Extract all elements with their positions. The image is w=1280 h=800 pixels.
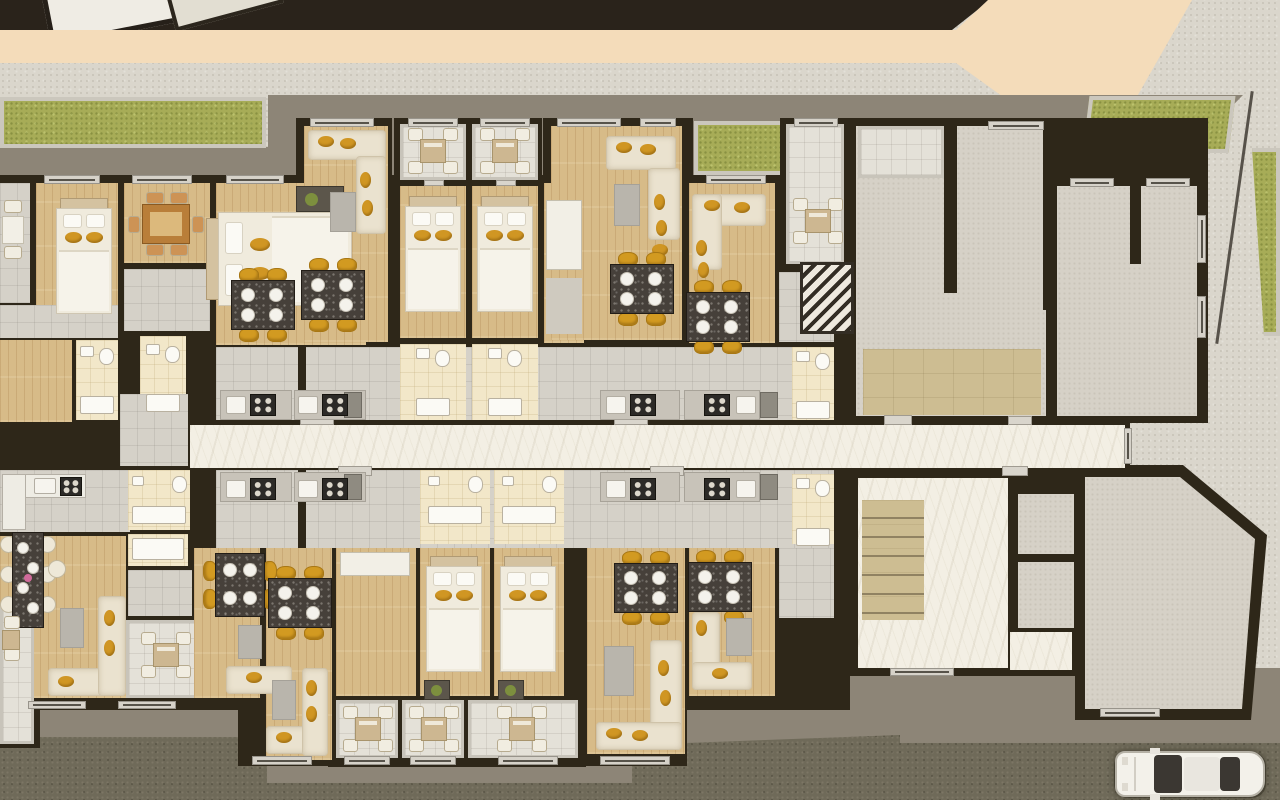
sofa-cushion bbox=[340, 138, 356, 149]
bathtub bbox=[796, 528, 830, 546]
cooktop bbox=[630, 478, 656, 500]
sofa-cushion bbox=[58, 676, 74, 687]
plate bbox=[278, 586, 292, 600]
bath-fixtures bbox=[128, 472, 190, 528]
chair bbox=[267, 328, 287, 342]
dining-table bbox=[215, 553, 265, 617]
wall-stub-3 bbox=[1130, 180, 1141, 264]
car-headlight bbox=[1122, 757, 1128, 765]
staircase bbox=[800, 262, 854, 334]
chair bbox=[618, 312, 638, 326]
sofa-cushion bbox=[306, 706, 317, 722]
plate bbox=[27, 562, 39, 574]
sofa-cushion bbox=[104, 610, 115, 626]
sink bbox=[146, 344, 160, 355]
chair bbox=[276, 626, 296, 640]
toilet bbox=[165, 346, 180, 363]
rug bbox=[614, 184, 640, 226]
window bbox=[794, 118, 838, 127]
storage-room-2 bbox=[1018, 562, 1074, 628]
bathtub bbox=[502, 506, 556, 524]
table-runner bbox=[425, 721, 443, 725]
car-rear-window bbox=[1220, 757, 1240, 791]
balcony-set bbox=[407, 128, 459, 174]
door bbox=[1008, 416, 1032, 425]
car-mirror bbox=[1150, 748, 1160, 754]
sink bbox=[80, 346, 94, 357]
plate bbox=[698, 570, 712, 584]
hall-s5 bbox=[779, 548, 834, 618]
balcony-set bbox=[496, 706, 548, 752]
rug bbox=[238, 625, 262, 659]
duvet bbox=[503, 608, 553, 669]
plate bbox=[17, 542, 29, 554]
plate bbox=[339, 298, 353, 312]
plate bbox=[223, 563, 237, 577]
bath-fixtures bbox=[484, 344, 526, 420]
sofa-cushion bbox=[712, 668, 728, 679]
rug bbox=[272, 680, 296, 720]
cooktop bbox=[322, 478, 348, 500]
plate bbox=[696, 320, 710, 334]
dining-set bbox=[684, 280, 752, 354]
accent-pillow bbox=[486, 230, 503, 241]
bath-fixtures bbox=[792, 474, 834, 544]
table-runner bbox=[496, 143, 514, 147]
fridge bbox=[760, 474, 778, 500]
sofa-cushion bbox=[360, 172, 371, 188]
dining-set bbox=[299, 258, 367, 332]
sofa-cushion bbox=[656, 220, 667, 236]
plate bbox=[726, 570, 740, 584]
window bbox=[310, 118, 374, 127]
accent-pillow bbox=[65, 232, 82, 243]
sidewalk bbox=[0, 30, 956, 63]
sink bbox=[488, 348, 502, 359]
toilet bbox=[542, 476, 557, 493]
cooktop bbox=[704, 394, 730, 416]
window bbox=[498, 756, 558, 765]
plate bbox=[223, 591, 237, 605]
sofa-cushion bbox=[640, 144, 656, 155]
window bbox=[640, 118, 676, 127]
accent-pillow bbox=[250, 238, 270, 251]
bathtub bbox=[428, 506, 482, 524]
kitchen-counter-bl bbox=[2, 474, 26, 530]
accent-pillow bbox=[509, 590, 526, 601]
sofa-cushion bbox=[246, 672, 262, 683]
car-roof bbox=[1184, 757, 1220, 791]
pillow bbox=[86, 214, 105, 228]
sofa-cushion bbox=[734, 202, 750, 213]
plate bbox=[726, 590, 740, 604]
balcony-table bbox=[2, 630, 20, 650]
table-runner bbox=[513, 721, 531, 725]
table-top bbox=[150, 212, 182, 236]
plate bbox=[269, 288, 283, 302]
plate bbox=[339, 278, 353, 292]
sofa bbox=[356, 156, 386, 234]
window bbox=[344, 756, 390, 765]
window bbox=[480, 118, 530, 127]
kitchen-sink bbox=[298, 480, 318, 498]
plate bbox=[724, 320, 738, 334]
pillow bbox=[507, 572, 526, 586]
room-left-3 bbox=[0, 340, 72, 422]
door bbox=[884, 415, 912, 425]
duvet bbox=[429, 608, 479, 669]
chair bbox=[128, 216, 140, 233]
sofa-cushion bbox=[616, 142, 632, 153]
desk bbox=[424, 680, 450, 700]
sofa-cushion bbox=[276, 732, 292, 743]
chair bbox=[170, 244, 188, 256]
garage-room-2 bbox=[1057, 186, 1197, 416]
balcony-set bbox=[342, 706, 394, 752]
chair bbox=[192, 216, 204, 233]
door bbox=[424, 180, 444, 186]
plant bbox=[305, 193, 318, 206]
car-mirror bbox=[1150, 794, 1160, 800]
wall-stub-2 bbox=[1043, 118, 1057, 310]
rug bbox=[604, 646, 634, 696]
window bbox=[410, 756, 456, 765]
chair bbox=[694, 340, 714, 354]
balcony-set bbox=[479, 128, 531, 174]
plate bbox=[269, 308, 283, 322]
storage-room-1 bbox=[1018, 494, 1074, 554]
double-bed bbox=[500, 556, 556, 672]
chair bbox=[337, 318, 357, 332]
balcony-set bbox=[792, 198, 844, 244]
chair bbox=[722, 340, 742, 354]
chair bbox=[646, 312, 666, 326]
sofa-cushion bbox=[362, 200, 373, 216]
bathtub bbox=[132, 506, 186, 524]
duvet bbox=[408, 248, 458, 309]
table-runner bbox=[157, 647, 175, 651]
toilet bbox=[435, 350, 450, 367]
plate bbox=[620, 292, 634, 306]
kitchen-sink bbox=[606, 396, 626, 414]
accent-pillow bbox=[530, 590, 547, 601]
sink bbox=[502, 476, 514, 486]
duvet bbox=[59, 250, 109, 311]
bathtub bbox=[132, 538, 184, 560]
window bbox=[1197, 215, 1206, 263]
dining-table bbox=[686, 292, 750, 342]
dining-table bbox=[610, 264, 674, 314]
plate bbox=[241, 308, 255, 322]
chair bbox=[48, 560, 66, 578]
double-bed bbox=[477, 196, 533, 312]
pillow bbox=[530, 572, 549, 586]
plate bbox=[306, 586, 320, 600]
kitchen-sink bbox=[736, 396, 756, 414]
accent-pillow bbox=[414, 230, 431, 241]
balcony-set bbox=[408, 706, 460, 752]
wood-dining-set bbox=[128, 192, 204, 256]
mini-dinette-table bbox=[2, 216, 24, 244]
balcony-set bbox=[140, 632, 192, 678]
toilet bbox=[99, 348, 114, 365]
toilet bbox=[172, 476, 187, 493]
plate bbox=[652, 591, 666, 605]
floor-plan-rendering bbox=[0, 0, 1280, 800]
chair bbox=[650, 611, 670, 625]
kitchen-sink bbox=[606, 480, 626, 498]
pillow bbox=[484, 212, 503, 226]
sofa-cushion bbox=[104, 640, 115, 656]
table-runner bbox=[809, 213, 827, 217]
cooktop bbox=[250, 394, 276, 416]
double-bed bbox=[56, 198, 112, 314]
plate bbox=[27, 602, 39, 614]
wardrobe bbox=[546, 200, 582, 270]
door bbox=[1002, 466, 1028, 476]
sink bbox=[796, 478, 810, 489]
sofa-cushion bbox=[654, 194, 665, 210]
roof-object-2 bbox=[164, 0, 284, 30]
sofa-cushion bbox=[318, 136, 334, 147]
pillow bbox=[225, 222, 243, 254]
window bbox=[890, 668, 954, 676]
window bbox=[118, 701, 176, 709]
dining-set bbox=[608, 252, 676, 326]
plate bbox=[648, 272, 662, 286]
door bbox=[496, 180, 516, 186]
dining-table bbox=[268, 578, 332, 628]
rug bbox=[60, 608, 84, 648]
table-runner bbox=[424, 143, 442, 147]
chair bbox=[309, 318, 329, 332]
chair bbox=[146, 244, 164, 256]
bathtub bbox=[146, 394, 180, 412]
sink bbox=[416, 348, 430, 359]
accent-pillow bbox=[435, 230, 452, 241]
chair bbox=[239, 328, 259, 342]
bathtub bbox=[796, 401, 830, 419]
sofa-cushion bbox=[696, 240, 707, 256]
accent-pillow bbox=[456, 590, 473, 601]
sink bbox=[796, 351, 810, 362]
kitchen-sink bbox=[226, 480, 246, 498]
plate bbox=[17, 582, 29, 594]
toilet bbox=[815, 353, 830, 370]
chair bbox=[622, 611, 642, 625]
window bbox=[706, 175, 766, 184]
stove bbox=[60, 477, 82, 496]
pillow bbox=[433, 572, 452, 586]
accent-pillow bbox=[507, 230, 524, 241]
kitchen-sink bbox=[226, 396, 246, 414]
pillow bbox=[507, 212, 526, 226]
pillow bbox=[435, 212, 454, 226]
stair-flight bbox=[862, 500, 924, 620]
plate bbox=[620, 272, 634, 286]
bath-fixtures bbox=[424, 472, 486, 528]
chair bbox=[304, 626, 324, 640]
pillow bbox=[456, 572, 475, 586]
sink bbox=[428, 476, 440, 486]
plate bbox=[311, 278, 325, 292]
dining-set bbox=[229, 268, 297, 342]
car-windshield bbox=[1154, 755, 1182, 793]
wardrobe bbox=[340, 552, 410, 576]
plate bbox=[696, 300, 710, 314]
toilet bbox=[815, 480, 830, 497]
sofa-cushion bbox=[632, 730, 648, 741]
rug bbox=[726, 618, 752, 656]
sofa-cushion bbox=[704, 200, 720, 211]
plate bbox=[306, 606, 320, 620]
plate bbox=[243, 591, 257, 605]
window bbox=[28, 701, 86, 709]
car-headlight bbox=[1122, 783, 1128, 791]
toilet bbox=[468, 476, 483, 493]
dining-set bbox=[266, 566, 334, 640]
sofa-cushion bbox=[306, 680, 317, 696]
mini-dinette-chair bbox=[4, 200, 22, 213]
dining-table bbox=[301, 270, 365, 320]
plate bbox=[243, 563, 257, 577]
stair-vestibule bbox=[1010, 632, 1072, 670]
window bbox=[1070, 178, 1114, 187]
kitchen-sink bbox=[34, 478, 56, 494]
double-bed bbox=[426, 556, 482, 672]
desk bbox=[498, 680, 524, 700]
sofa-cushion bbox=[698, 262, 709, 278]
bath-fixtures bbox=[412, 344, 454, 420]
dining-table bbox=[688, 562, 752, 612]
balcony-chair bbox=[4, 616, 20, 629]
bath-fixtures bbox=[792, 347, 834, 420]
plate bbox=[311, 298, 325, 312]
hall-south bbox=[128, 570, 192, 616]
sofa-cushion bbox=[606, 728, 622, 739]
plate bbox=[241, 288, 255, 302]
plant bbox=[431, 685, 442, 696]
dining-table bbox=[614, 563, 678, 613]
window bbox=[600, 756, 670, 765]
dining-table bbox=[231, 280, 295, 330]
plate bbox=[624, 571, 638, 585]
chair bbox=[170, 192, 188, 204]
toilet bbox=[507, 350, 522, 367]
flower bbox=[24, 574, 32, 582]
wing-porch bbox=[858, 126, 944, 178]
fridge bbox=[760, 392, 778, 418]
window bbox=[252, 756, 312, 765]
corridor bbox=[190, 425, 1125, 468]
window bbox=[1124, 428, 1132, 464]
cabinet bbox=[546, 278, 582, 334]
window bbox=[408, 118, 458, 127]
bath-fixtures bbox=[142, 340, 184, 416]
bathtub bbox=[80, 396, 114, 414]
bath-fixtures bbox=[498, 472, 560, 528]
window bbox=[132, 175, 192, 184]
window bbox=[988, 121, 1044, 130]
cooktop bbox=[250, 478, 276, 500]
cooktop bbox=[704, 478, 730, 500]
bathtub bbox=[488, 398, 522, 416]
window bbox=[1146, 178, 1190, 187]
chair bbox=[146, 192, 164, 204]
sofa-cushion bbox=[660, 690, 671, 706]
hall-left bbox=[124, 269, 210, 331]
kitchen-sink bbox=[736, 480, 756, 498]
window bbox=[557, 118, 621, 127]
bath-fixtures bbox=[76, 342, 118, 418]
sink bbox=[132, 476, 144, 486]
mini-dinette-chair bbox=[4, 246, 22, 259]
double-bed bbox=[405, 196, 461, 312]
window bbox=[1197, 296, 1206, 338]
sofa-cushion bbox=[696, 620, 707, 636]
window bbox=[1100, 708, 1160, 717]
adjacent-roof bbox=[0, 0, 990, 30]
plate bbox=[624, 591, 638, 605]
bathtub bbox=[416, 398, 450, 416]
window bbox=[44, 175, 100, 184]
accent-pillow bbox=[435, 590, 452, 601]
pillow bbox=[412, 212, 431, 226]
pillow bbox=[63, 214, 82, 228]
sofa-cushion bbox=[658, 660, 669, 676]
dining-set bbox=[612, 551, 680, 625]
cooktop bbox=[630, 394, 656, 416]
plate bbox=[278, 606, 292, 620]
accent-pillow bbox=[86, 232, 103, 243]
car bbox=[1114, 748, 1266, 800]
plate bbox=[698, 590, 712, 604]
plate bbox=[652, 571, 666, 585]
duvet bbox=[480, 248, 530, 309]
cooktop bbox=[322, 394, 348, 416]
car-hood-line bbox=[1134, 757, 1136, 791]
table-runner bbox=[359, 721, 377, 725]
plant bbox=[505, 685, 516, 696]
plate bbox=[724, 300, 738, 314]
wall-stub-1 bbox=[944, 118, 957, 293]
kitchen-sink bbox=[298, 396, 318, 414]
lawn-left bbox=[0, 97, 266, 148]
window bbox=[226, 175, 284, 184]
ramp-room bbox=[863, 349, 1041, 415]
rug bbox=[330, 192, 356, 232]
plate bbox=[648, 292, 662, 306]
